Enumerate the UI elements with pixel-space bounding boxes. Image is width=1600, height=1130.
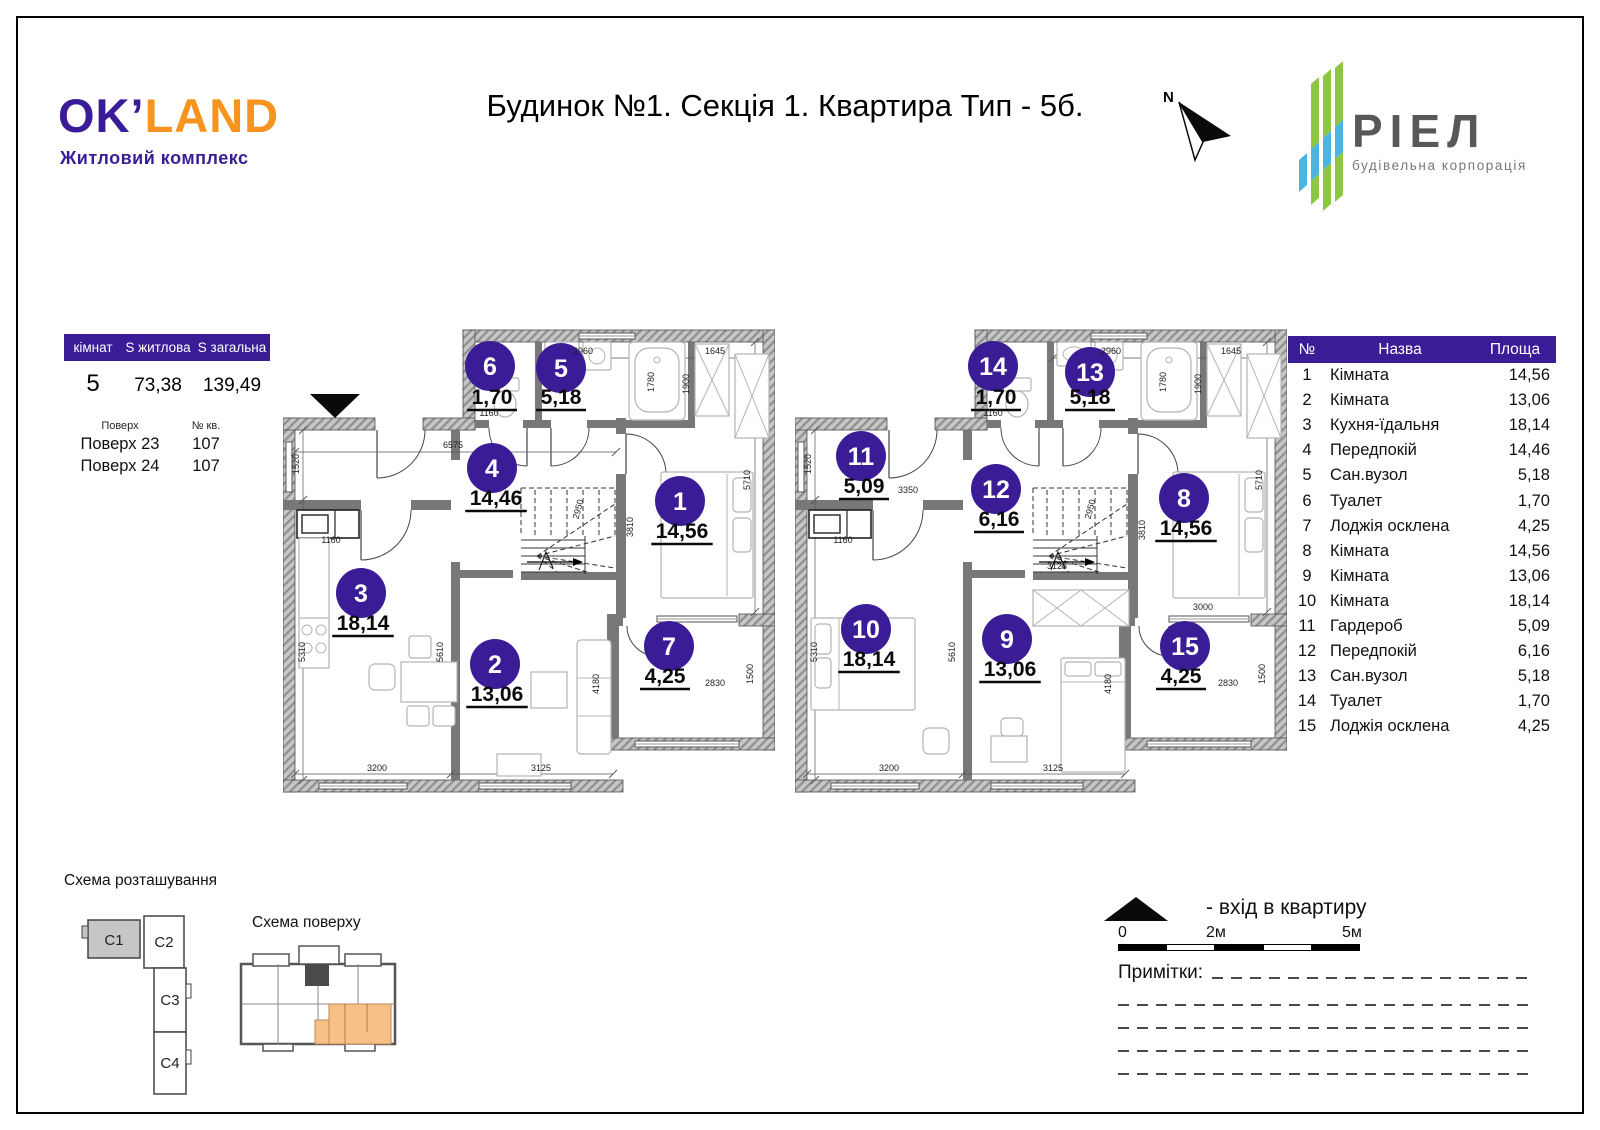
room-area: 5,18 — [1070, 386, 1111, 409]
room-number: 12 — [982, 476, 1010, 504]
room-area: 1,70 — [472, 386, 513, 409]
summary-living-area: 73,38 — [122, 375, 194, 397]
room-row-area: 5,18 — [1474, 667, 1556, 686]
dimension-label: 5310 — [809, 642, 819, 662]
floor-plan-level-1: 61,7055,18414,46114,56318,14213,0674,256… — [283, 322, 775, 800]
room-number: 5 — [554, 355, 568, 383]
okland-logo-part1: OK’ — [58, 89, 145, 142]
room-area: 4,25 — [645, 665, 686, 688]
location-scheme-label: Схема розташування — [64, 872, 217, 890]
dimension-label: 1160 — [833, 535, 852, 545]
floors-header: Поверх № кв. — [64, 420, 270, 432]
room-row-name: Кімната — [1326, 366, 1474, 385]
room-row: 4Передпокій14,46 — [1288, 438, 1556, 463]
dimension-label: 2830 — [1218, 678, 1238, 688]
dimension-label: 5710 — [1254, 470, 1264, 490]
room-number: 3 — [354, 580, 368, 608]
room-area: 14,56 — [1160, 517, 1213, 540]
okland-logo-part2: LAND — [145, 89, 280, 142]
dimension-label: 1500 — [745, 664, 755, 684]
room-number: 10 — [852, 616, 880, 644]
room-row-area: 14,56 — [1474, 542, 1556, 561]
room-row: 10Кімната18,14 — [1288, 589, 1556, 614]
room-row-area: 18,14 — [1474, 416, 1556, 435]
dimension-label: 3200 — [367, 763, 387, 773]
page-title: Будинок №1. Секція 1. Квартира Тип - 5б. — [400, 88, 1170, 124]
summary-values: 5 73,38 139,49 — [64, 370, 270, 398]
room-row-name: Лоджія осклена — [1326, 517, 1474, 536]
dimension-label: 4180 — [591, 674, 601, 694]
floor-row: Поверх 24 107 — [64, 457, 270, 476]
north-arrow-icon: N — [1155, 80, 1239, 164]
room-number: 1 — [673, 488, 687, 516]
dimension-label: 1645 — [705, 346, 725, 356]
room-row-name: Кімната — [1326, 567, 1474, 586]
room-number: 11 — [848, 443, 875, 471]
north-label: N — [1163, 89, 1174, 106]
riel-logo-icon — [1283, 60, 1355, 212]
room-row-name: Передпокій — [1326, 441, 1474, 460]
room-row-name: Кімната — [1326, 592, 1474, 611]
room-number: 15 — [1171, 633, 1199, 661]
dimension-label: 3125 — [531, 763, 551, 773]
room-area: 5,09 — [844, 475, 885, 498]
room-row: 1Кімната14,56 — [1288, 363, 1556, 388]
dimension-label: 1520 — [803, 454, 813, 474]
room-row-name: Кухня-їдальня — [1326, 416, 1474, 435]
summary-rooms-count: 5 — [64, 370, 122, 398]
room-row-name: Туалет — [1326, 492, 1474, 511]
room-area: 14,56 — [656, 520, 709, 543]
dimension-label: 4180 — [1103, 674, 1113, 694]
room-row: 9Кімната13,06 — [1288, 564, 1556, 589]
summary-table: кімнат S житлова S загальна 5 73,38 139,… — [64, 334, 270, 476]
room-row-name: Лоджія осклена — [1326, 717, 1474, 736]
room-row: 3Кухня-їдальня18,14 — [1288, 413, 1556, 438]
room-row-num: 13 — [1288, 667, 1326, 686]
room-number: 6 — [483, 353, 497, 381]
scale-labels: 0 2м 5м — [1118, 924, 1362, 940]
notes-line — [1118, 1027, 1532, 1029]
section-label: С1 — [104, 932, 123, 949]
dimension-label: 1900 — [681, 374, 691, 394]
dimension-label: 6575 — [443, 440, 463, 450]
room-row-area: 1,70 — [1474, 492, 1556, 511]
room-number: 2 — [488, 651, 502, 679]
room-area: 18,14 — [843, 648, 896, 671]
room-row-num: 4 — [1288, 441, 1326, 460]
rooms-table-body: 1Кімната14,562Кімната13,063Кухня-їдальня… — [1288, 363, 1556, 739]
room-number: 13 — [1076, 359, 1104, 387]
room-row-num: 1 — [1288, 366, 1326, 385]
dimension-label: 1160 — [479, 408, 498, 418]
notes-line — [1118, 1073, 1532, 1075]
room-row-num: 3 — [1288, 416, 1326, 435]
room-row-area: 5,18 — [1474, 466, 1556, 485]
rooms-header-area: Площа — [1474, 341, 1556, 359]
room-row-area: 4,25 — [1474, 517, 1556, 536]
room-row-name: Кімната — [1326, 542, 1474, 561]
dimension-label: 1900 — [1193, 374, 1203, 394]
dimension-label: 1780 — [1158, 372, 1168, 392]
room-row: 6Туалет1,70 — [1288, 488, 1556, 513]
dimension-label: 1160 — [321, 535, 340, 545]
rooms-table: № Назва Площа 1Кімната14,562Кімната13,06… — [1288, 336, 1556, 739]
room-area: 4,25 — [1161, 665, 1202, 688]
room-row-name: Гардероб — [1326, 617, 1474, 636]
floor-24: Поверх 24 — [64, 457, 176, 476]
floor-scheme-label: Схема поверху — [252, 914, 361, 932]
room-row-area: 6,16 — [1474, 642, 1556, 661]
room-row-num: 14 — [1288, 692, 1326, 711]
dimension-label: 5610 — [947, 642, 957, 662]
floor-scheme-stairwell — [305, 964, 329, 986]
dimension-label: 3125 — [1043, 763, 1063, 773]
floor-24-apt: 107 — [176, 457, 236, 476]
room-row-area: 13,06 — [1474, 391, 1556, 410]
room-number: 8 — [1177, 485, 1191, 513]
summary-header-total-area: S загальна — [194, 340, 270, 355]
room-row-name: Сан.вузол — [1326, 466, 1474, 485]
dimension-label: 5610 — [435, 642, 445, 662]
dimension-label: 2830 — [705, 678, 725, 688]
room-row-name: Сан.вузол — [1326, 667, 1474, 686]
riel-logo-text: РІЕЛ — [1352, 104, 1486, 158]
room-area: 18,14 — [337, 612, 390, 635]
floor-23-apt: 107 — [176, 435, 236, 454]
scale-2m: 2м — [1206, 924, 1226, 942]
room-row-name: Туалет — [1326, 692, 1474, 711]
dimension-label: 1520 — [291, 454, 301, 474]
entrance-marker-icon — [310, 394, 360, 418]
room-row: 13Сан.вузол5,18 — [1288, 664, 1556, 689]
room-row-num: 6 — [1288, 492, 1326, 511]
room-row: 5Сан.вузол5,18 — [1288, 463, 1556, 488]
room-row-name: Передпокій — [1326, 642, 1474, 661]
dimension-label: 3125 — [1047, 561, 1067, 571]
location-scheme: С1С2С3С4 — [64, 894, 254, 1109]
dimension-label: 3000 — [1193, 602, 1213, 612]
room-area: 5,18 — [541, 386, 582, 409]
dimension-label: 1645 — [1221, 346, 1241, 356]
floors-header-apt: № кв. — [176, 420, 236, 432]
notes-label: Примітки: — [1118, 962, 1203, 984]
dimension-label: 3810 — [625, 517, 635, 537]
summary-header-rooms: кімнат — [64, 340, 122, 355]
dimension-label: 2960 — [573, 346, 593, 356]
room-area: 13,06 — [471, 683, 524, 706]
rooms-table-header: № Назва Площа — [1288, 336, 1556, 363]
room-area: 6,16 — [979, 508, 1020, 531]
room-row-num: 10 — [1288, 592, 1326, 611]
summary-total-area: 139,49 — [194, 375, 270, 397]
riel-subtitle: будівельна корпорація — [1352, 158, 1527, 173]
room-row-area: 13,06 — [1474, 567, 1556, 586]
floor-scheme — [233, 936, 403, 1071]
floors-header-floor: Поверх — [64, 420, 176, 432]
room-row: 8Кімната14,56 — [1288, 539, 1556, 564]
notes-line — [1212, 977, 1532, 979]
room-row-num: 8 — [1288, 542, 1326, 561]
room-row-num: 15 — [1288, 717, 1326, 736]
room-number: 9 — [1000, 626, 1014, 654]
room-row-num: 12 — [1288, 642, 1326, 661]
room-number: 4 — [485, 455, 499, 483]
section-label: С2 — [154, 934, 173, 951]
notes-line — [1118, 1050, 1532, 1052]
room-number: 7 — [662, 633, 676, 661]
room-row-num: 9 — [1288, 567, 1326, 586]
dimension-label: 2960 — [1101, 346, 1121, 356]
room-row: 15Лоджія осклена4,25 — [1288, 714, 1556, 739]
dimension-label: 1780 — [646, 372, 656, 392]
entrance-marker-icon — [1100, 893, 1172, 923]
room-row: 7Лоджія осклена4,25 — [1288, 514, 1556, 539]
okland-subtitle: Житловий комплекс — [60, 148, 249, 169]
room-row: 2Кімната13,06 — [1288, 388, 1556, 413]
room-row-area: 14,56 — [1474, 366, 1556, 385]
rooms-header-num: № — [1288, 341, 1326, 359]
section-label: С3 — [160, 992, 179, 1009]
room-row-name: Кімната — [1326, 391, 1474, 410]
entrance-legend-label: - вхід в квартиру — [1206, 896, 1367, 920]
dimension-label: 3350 — [898, 485, 918, 495]
section-label: С4 — [160, 1055, 179, 1072]
room-row-num: 7 — [1288, 517, 1326, 536]
okland-logo: OK’LAND — [58, 92, 279, 139]
dimension-label: 1500 — [1257, 664, 1267, 684]
dimension-label: 3810 — [1137, 520, 1147, 540]
floor-23: Поверх 23 — [64, 435, 176, 454]
notes-line — [1118, 1004, 1532, 1006]
room-row: 12Передпокій6,16 — [1288, 639, 1556, 664]
room-row-num: 11 — [1288, 617, 1326, 636]
scale-bar — [1118, 944, 1360, 951]
room-row-area: 14,46 — [1474, 441, 1556, 460]
room-area: 1,70 — [976, 386, 1017, 409]
room-row-num: 2 — [1288, 391, 1326, 410]
room-row-area: 5,09 — [1474, 617, 1556, 636]
room-row-area: 18,14 — [1474, 592, 1556, 611]
rooms-header-name: Назва — [1326, 341, 1474, 359]
room-row: 11Гардероб5,09 — [1288, 614, 1556, 639]
floor-row: Поверх 23 107 — [64, 435, 270, 454]
scale-0: 0 — [1118, 924, 1127, 942]
summary-header-living-area: S житлова — [122, 340, 194, 355]
dimension-label: 1160 — [983, 408, 1002, 418]
dimension-label: 3200 — [879, 763, 899, 773]
dimension-label: 5310 — [297, 642, 307, 662]
room-area: 13,06 — [984, 658, 1037, 681]
summary-table-header: кімнат S житлова S загальна — [64, 334, 270, 361]
floor-plan-level-2: 141,70135,18115,09126,16814,561018,14913… — [795, 322, 1287, 800]
room-row-area: 4,25 — [1474, 717, 1556, 736]
room-number: 14 — [979, 353, 1007, 381]
scale-5m: 5м — [1342, 924, 1362, 942]
room-row: 14Туалет1,70 — [1288, 689, 1556, 714]
room-row-area: 1,70 — [1474, 692, 1556, 711]
dimension-label: 5710 — [742, 470, 752, 490]
room-area: 14,46 — [470, 487, 523, 510]
floor-scheme-highlighted-apartment — [329, 1004, 391, 1044]
room-row-num: 5 — [1288, 466, 1326, 485]
